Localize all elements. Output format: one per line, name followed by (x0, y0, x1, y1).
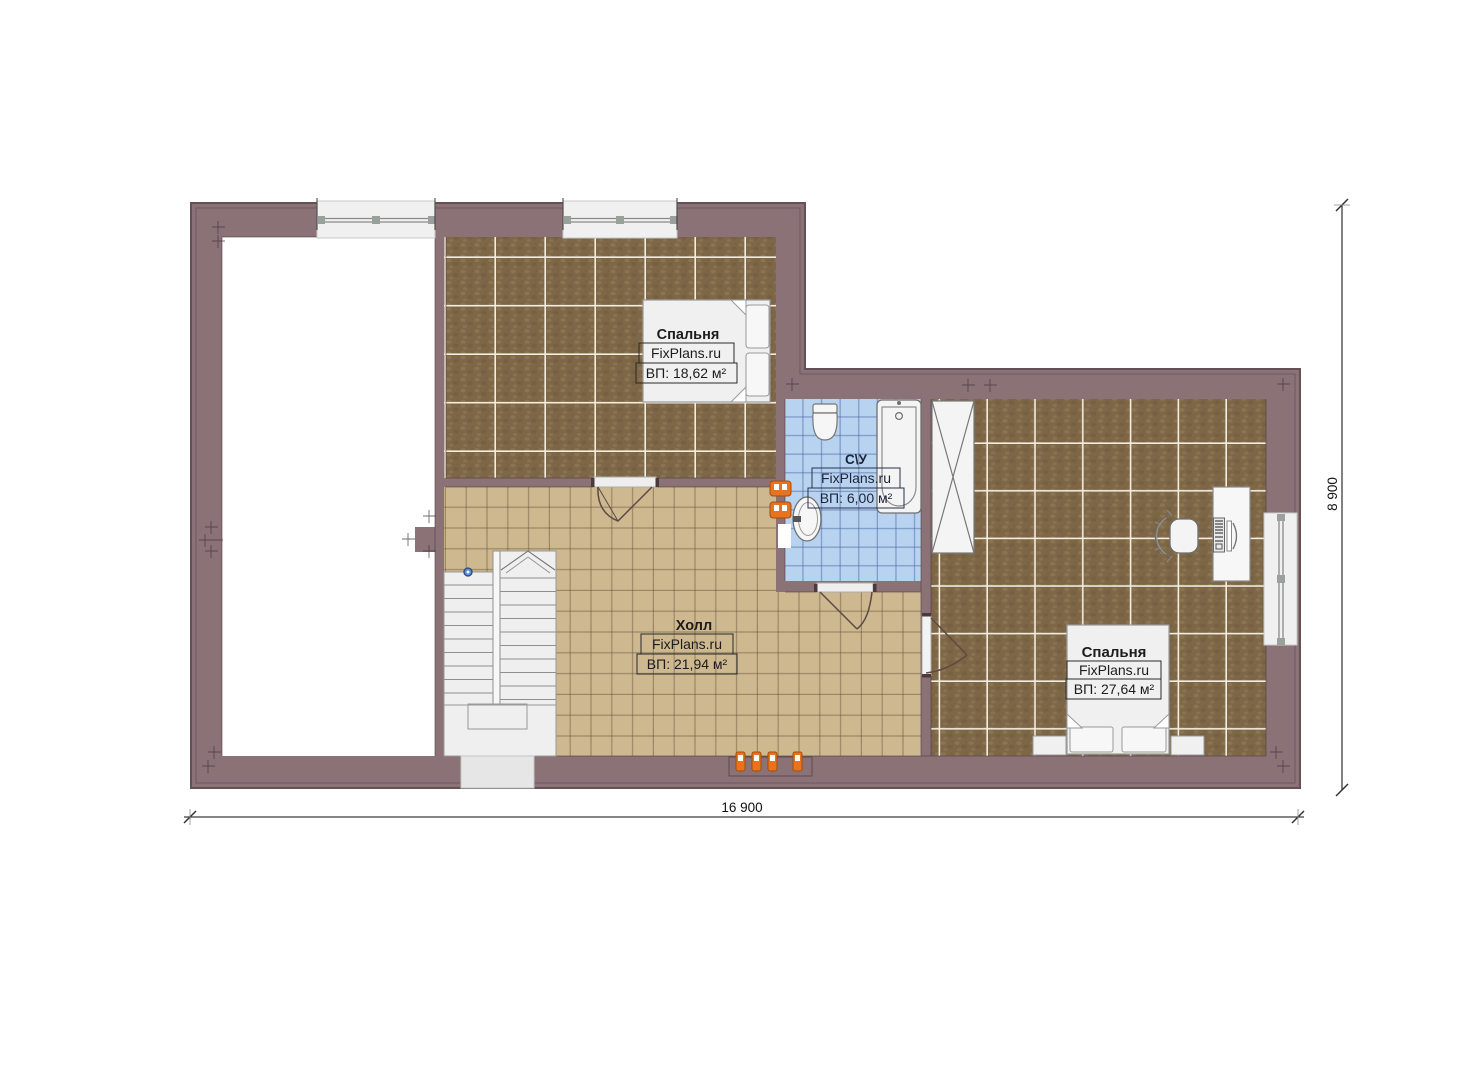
svg-text:С\У: С\У (845, 452, 868, 467)
svg-text:FixPlans.ru: FixPlans.ru (652, 636, 722, 652)
svg-text:Спальня: Спальня (657, 327, 720, 343)
svg-text:FixPlans.ru: FixPlans.ru (651, 345, 721, 361)
svg-text:ВП: 21,94 м²: ВП: 21,94 м² (647, 656, 728, 672)
svg-text:16 900: 16 900 (721, 800, 762, 815)
svg-text:Спальня: Спальня (1082, 644, 1147, 661)
svg-text:FixPlans.ru: FixPlans.ru (1079, 662, 1149, 678)
svg-text:FixPlans.ru: FixPlans.ru (821, 470, 891, 486)
svg-text:ВП: 18,62 м²: ВП: 18,62 м² (646, 365, 727, 381)
svg-text:8 900: 8 900 (1325, 477, 1340, 511)
svg-text:Холл: Холл (676, 618, 712, 634)
svg-text:ВП: 6,00 м²: ВП: 6,00 м² (820, 490, 893, 506)
svg-text:ВП: 27,64 м²: ВП: 27,64 м² (1074, 681, 1155, 697)
